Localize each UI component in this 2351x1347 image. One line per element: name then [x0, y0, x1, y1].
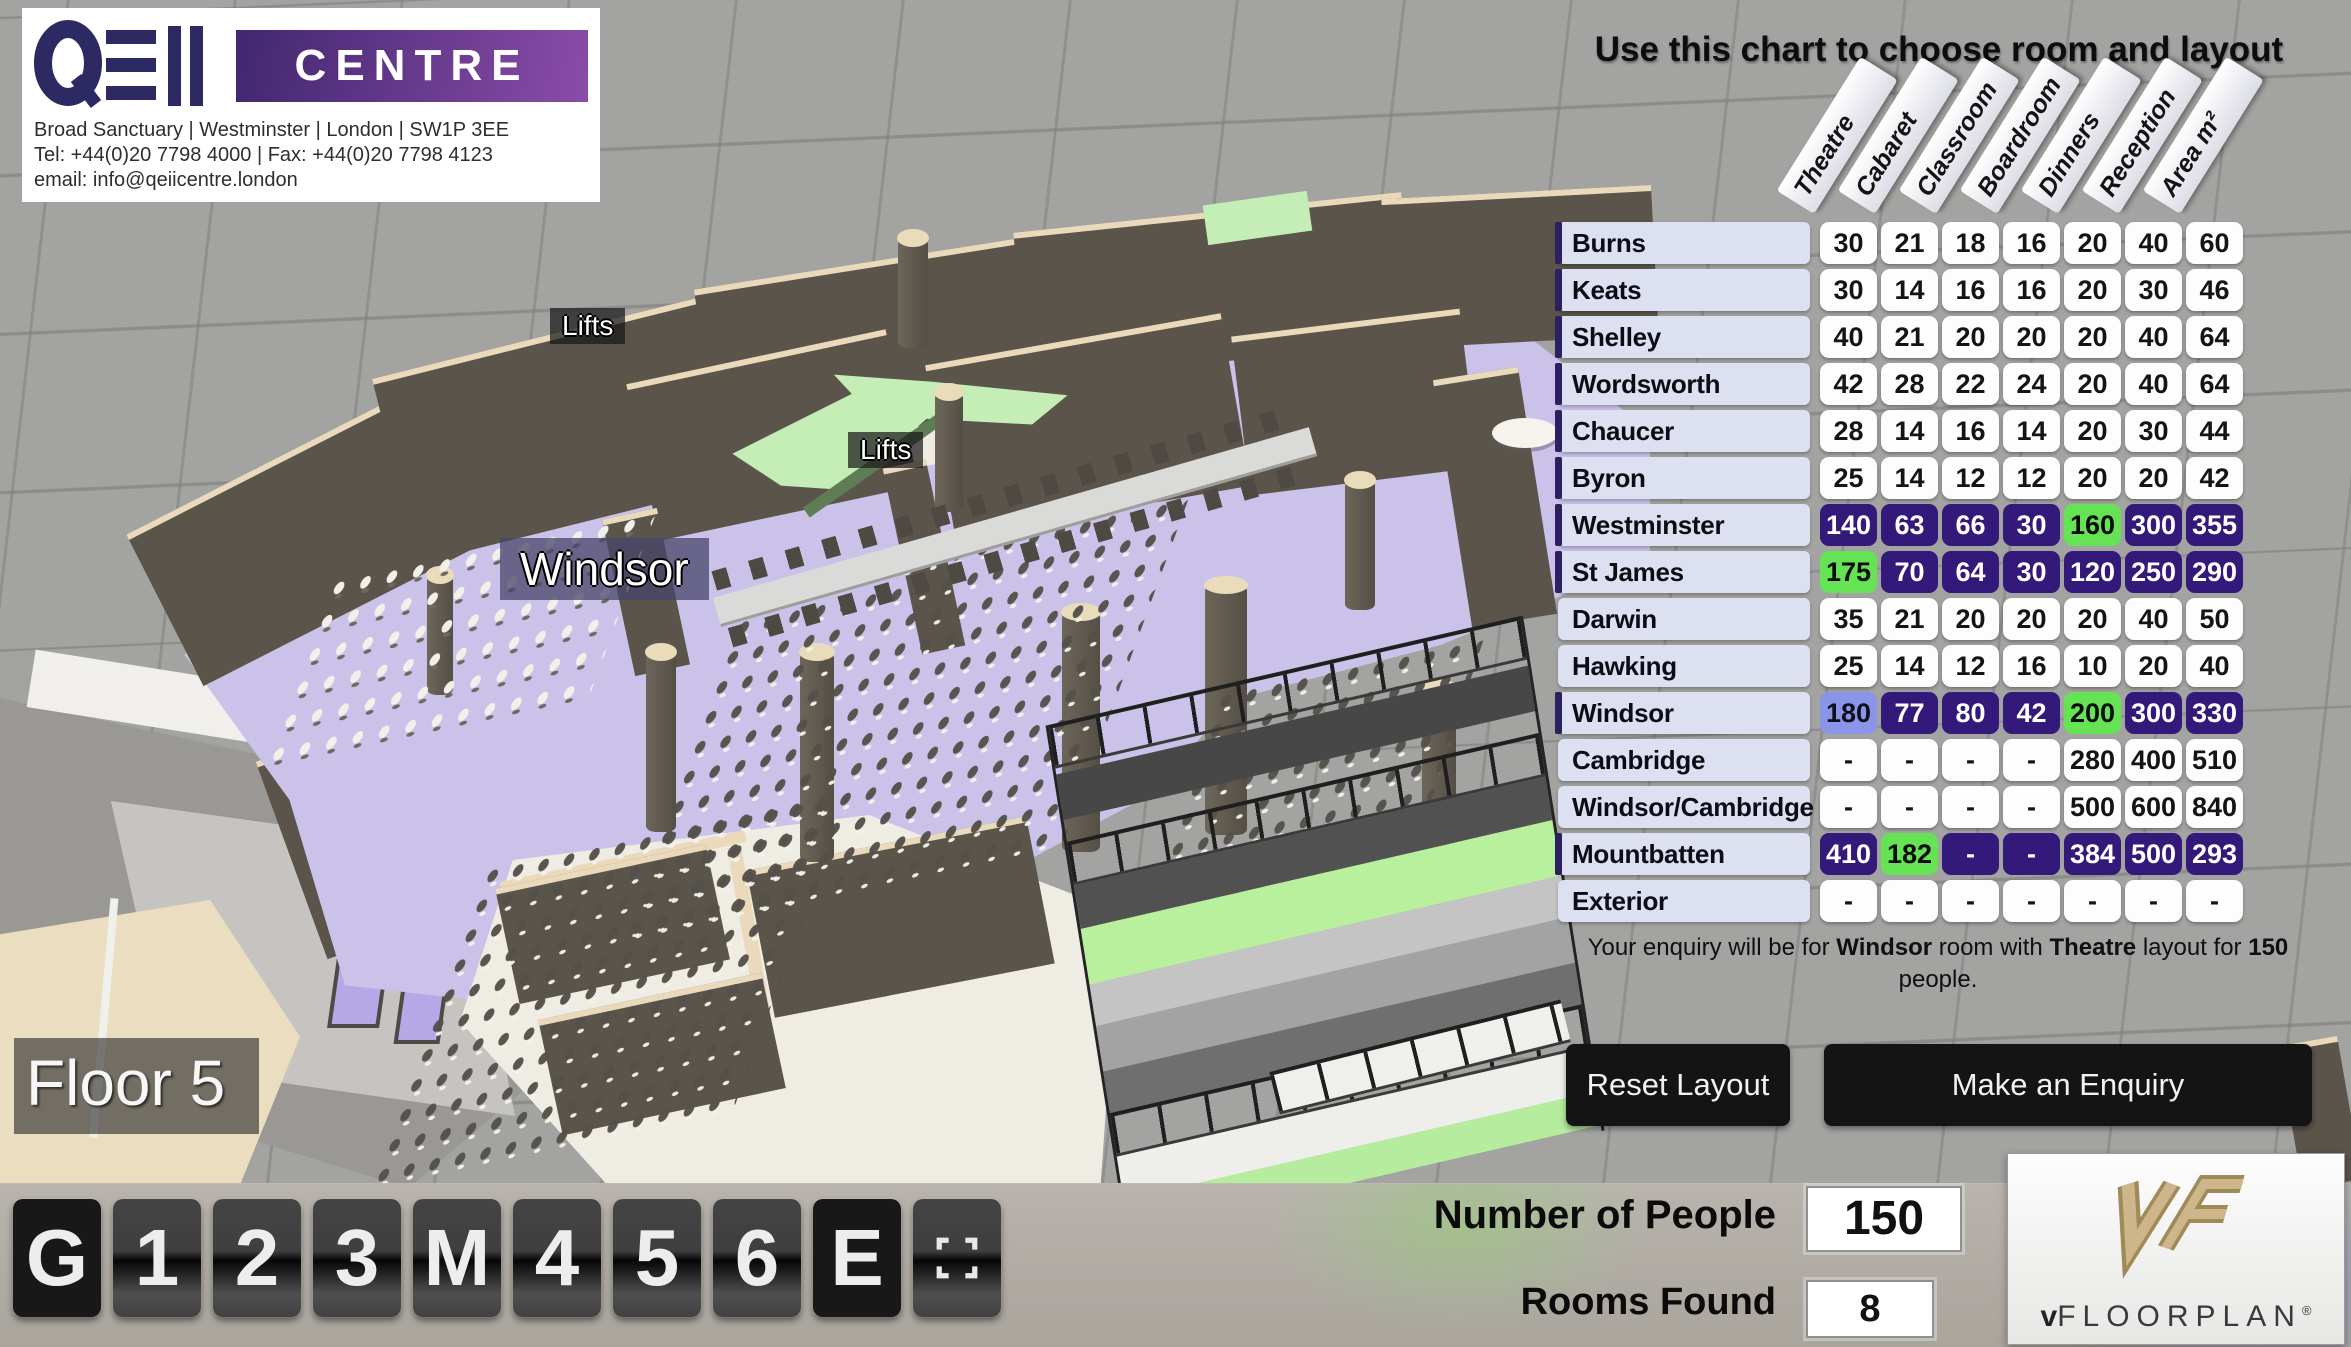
make-enquiry-button[interactable]: Make an Enquiry: [1824, 1044, 2312, 1126]
capacity-cell[interactable]: 20: [2064, 410, 2121, 452]
capacity-cell[interactable]: 300: [2125, 692, 2182, 734]
room-row-label[interactable]: Keats: [1558, 269, 1810, 311]
floor-button-label: 3: [335, 1212, 380, 1304]
capacity-cell[interactable]: 14: [1881, 457, 1938, 499]
capacity-cell[interactable]: 77: [1881, 692, 1938, 734]
room-row-label[interactable]: Wordsworth: [1558, 363, 1810, 405]
capacity-cell[interactable]: 64: [2186, 363, 2243, 405]
table-row: Byron25141212202042: [1558, 457, 2318, 499]
table-row: Shelley40212020204064: [1558, 316, 2318, 358]
table-row: Windsor180778042200300330: [1558, 692, 2318, 734]
wordmark-v: v: [2041, 1300, 2058, 1333]
capacity-cell[interactable]: 28: [1881, 363, 1938, 405]
vfloorplan-app: Lifts Lifts Windsor Floor 5 CENTRE Broad…: [0, 0, 2351, 1347]
capacity-cell[interactable]: 20: [2064, 269, 2121, 311]
capacity-cell[interactable]: -: [2003, 739, 2060, 781]
enquiry-text: Your enquiry will be for: [1588, 934, 1837, 961]
capacity-cell[interactable]: 20: [2064, 222, 2121, 264]
capacity-cell[interactable]: 30: [2003, 504, 2060, 546]
floor-button-3[interactable]: 3: [313, 1199, 401, 1317]
bottom-toolbar: G123M456E Number of People 150 Rooms Fou…: [0, 1183, 2351, 1347]
venue-address: Broad Sanctuary | Westminster | London |…: [34, 118, 588, 143]
capacity-cell[interactable]: -: [2064, 880, 2121, 922]
fullscreen-icon: [934, 1235, 980, 1281]
vfloorplan-logo: vFLOORPLAN®: [2007, 1153, 2345, 1345]
fullscreen-button[interactable]: [913, 1199, 1001, 1317]
capacity-cell[interactable]: 20: [2064, 457, 2121, 499]
floor-button-label: M: [424, 1212, 491, 1304]
capacity-cell[interactable]: 14: [1881, 269, 1938, 311]
column: [1345, 480, 1375, 610]
capacity-cell[interactable]: -: [2125, 880, 2182, 922]
table-row: Wordsworth42282224204064: [1558, 363, 2318, 405]
table-row: St James175706430120250290: [1558, 551, 2318, 593]
capacity-cell[interactable]: 20: [2064, 316, 2121, 358]
floor-button-label: 5: [635, 1212, 680, 1304]
capacity-cell[interactable]: 42: [2186, 457, 2243, 499]
capacity-cell[interactable]: 14: [2003, 410, 2060, 452]
capacity-cell[interactable]: 16: [2003, 269, 2060, 311]
table-row: Mountbatten410182--384500293: [1558, 833, 2318, 875]
capacity-cell[interactable]: 280: [2064, 739, 2121, 781]
capacity-cell[interactable]: 12: [1942, 457, 1999, 499]
room-row-label[interactable]: St James: [1558, 551, 1810, 593]
capacity-cell[interactable]: 500: [2064, 786, 2121, 828]
capacity-cell[interactable]: -: [1820, 880, 1877, 922]
capacity-cell[interactable]: 500: [2125, 833, 2182, 875]
capacity-cell[interactable]: 12: [1942, 645, 1999, 687]
capacity-cell[interactable]: 50: [2186, 598, 2243, 640]
capacity-cell[interactable]: 384: [2064, 833, 2121, 875]
floor-button-label: 4: [535, 1212, 580, 1304]
capacity-cell[interactable]: 20: [2125, 645, 2182, 687]
capacity-cell[interactable]: -: [1942, 880, 1999, 922]
centre-wordmark: CENTRE: [236, 30, 588, 102]
vfloorplan-wordmark: vFLOORPLAN®: [2041, 1300, 2312, 1334]
capacity-cell[interactable]: 28: [1820, 410, 1877, 452]
floor-button-G[interactable]: G: [13, 1199, 101, 1317]
room-chart-panel: Use this chart to choose room and layout…: [1556, 30, 2322, 1142]
enquiry-text: people.: [1899, 966, 1978, 993]
table-row: Cambridge----280400510: [1558, 739, 2318, 781]
floor-button-5[interactable]: 5: [613, 1199, 701, 1317]
capacity-cell[interactable]: -: [1942, 833, 1999, 875]
venue-brand-card: CENTRE Broad Sanctuary | Westminster | L…: [22, 8, 600, 202]
capacity-cell[interactable]: 70: [1881, 551, 1938, 593]
enquiry-text: room with: [1932, 934, 2049, 961]
floor-button-E[interactable]: E: [813, 1199, 901, 1317]
floor-button-4[interactable]: 4: [513, 1199, 601, 1317]
floor-button-2[interactable]: 2: [213, 1199, 301, 1317]
capacity-cell[interactable]: 42: [1820, 363, 1877, 405]
capacity-cell[interactable]: 14: [1881, 410, 1938, 452]
capacity-cell[interactable]: -: [1881, 739, 1938, 781]
capacity-cell[interactable]: 66: [1942, 504, 1999, 546]
capacity-cell[interactable]: 63: [1881, 504, 1938, 546]
capacity-cell[interactable]: 200: [2064, 692, 2121, 734]
capacity-cell[interactable]: 21: [1881, 598, 1938, 640]
capacity-cell[interactable]: 10: [2064, 645, 2121, 687]
capacity-cell[interactable]: 12: [2003, 457, 2060, 499]
capacity-cell[interactable]: 44: [2186, 410, 2243, 452]
capacity-cell[interactable]: 24: [2003, 363, 2060, 405]
capacity-cell[interactable]: 160: [2064, 504, 2121, 546]
capacity-cell[interactable]: 20: [1942, 598, 1999, 640]
capacity-cell[interactable]: 293: [2186, 833, 2243, 875]
room-row-label[interactable]: Westminster: [1558, 504, 1810, 546]
wordmark-rest: FLOORPLAN: [2057, 1300, 2302, 1333]
enquiry-room: Windsor: [1836, 934, 1932, 961]
capacity-cell[interactable]: 16: [1942, 410, 1999, 452]
column: [898, 238, 928, 348]
capacity-cell[interactable]: 18: [1942, 222, 1999, 264]
venue-phone: Tel: +44(0)20 7798 4000 | Fax: +44(0)20 …: [34, 143, 588, 168]
enquiry-layout: Theatre: [2049, 934, 2136, 961]
capacity-cell[interactable]: 600: [2125, 786, 2182, 828]
capacity-cell[interactable]: 510: [2186, 739, 2243, 781]
capacity-cell[interactable]: -: [2186, 880, 2243, 922]
capacity-cell[interactable]: 40: [2125, 316, 2182, 358]
capacity-cell[interactable]: 330: [2186, 692, 2243, 734]
room-row-label[interactable]: Mountbatten: [1558, 833, 1810, 875]
capacity-cell[interactable]: 22: [1942, 363, 1999, 405]
venue-email: email: info@qeiicentre.london: [34, 168, 588, 193]
capacity-cell[interactable]: 40: [2125, 222, 2182, 264]
capacity-cell[interactable]: -: [2003, 880, 2060, 922]
people-count-label: Number of People: [1380, 1193, 1776, 1238]
qeii-logo: [34, 18, 226, 114]
escalator-well: [1046, 615, 1605, 1240]
capacity-cell[interactable]: -: [1942, 786, 1999, 828]
vf-emblem-icon: [2091, 1160, 2261, 1280]
floor-button-label: G: [26, 1212, 88, 1304]
room-row-label[interactable]: Shelley: [1558, 316, 1810, 358]
table-row: Burns30211816204060: [1558, 222, 2318, 264]
table-row: Windsor/Cambridge----500600840: [1558, 786, 2318, 828]
capacity-cell[interactable]: 30: [2125, 269, 2182, 311]
capacity-cell[interactable]: 20: [2003, 316, 2060, 358]
capacity-cell[interactable]: 182: [1881, 833, 1938, 875]
room-row-label[interactable]: Exterior: [1558, 880, 1810, 922]
capacity-cell[interactable]: 30: [1820, 222, 1877, 264]
capacity-cell[interactable]: 20: [2064, 363, 2121, 405]
capacity-cell[interactable]: 40: [2186, 645, 2243, 687]
capacity-cell[interactable]: 120: [2064, 551, 2121, 593]
capacity-cell[interactable]: 21: [1881, 316, 1938, 358]
capacity-cell[interactable]: 64: [1942, 551, 1999, 593]
capacity-cell[interactable]: 175: [1820, 551, 1877, 593]
lifts-label: Lifts: [550, 308, 625, 344]
capacity-cell[interactable]: 40: [1820, 316, 1877, 358]
room-row-label[interactable]: Hawking: [1558, 645, 1810, 687]
capacity-cell[interactable]: 400: [2125, 739, 2182, 781]
room-row-label[interactable]: Windsor/Cambridge: [1558, 786, 1810, 828]
column: [935, 392, 963, 512]
capacity-cell[interactable]: 14: [1881, 645, 1938, 687]
table-row: Hawking25141216102040: [1558, 645, 2318, 687]
room-row-label[interactable]: Cambridge: [1558, 739, 1810, 781]
capacity-cell[interactable]: 64: [2186, 316, 2243, 358]
capacity-cell[interactable]: 300: [2125, 504, 2182, 546]
round-table: [1492, 418, 1558, 448]
enquiry-summary: Your enquiry will be for Windsor room wi…: [1566, 932, 2310, 996]
reset-layout-button[interactable]: Reset Layout: [1566, 1044, 1790, 1126]
capacity-cell[interactable]: 250: [2125, 551, 2182, 593]
capacity-cell[interactable]: 80: [1942, 692, 1999, 734]
registered-mark: ®: [2302, 1303, 2312, 1318]
capacity-cell[interactable]: 21: [1881, 222, 1938, 264]
capacity-cell[interactable]: 25: [1820, 645, 1877, 687]
table-row: Keats30141616203046: [1558, 269, 2318, 311]
capacity-cell[interactable]: 30: [2003, 551, 2060, 593]
table-row: Darwin35212020204050: [1558, 598, 2318, 640]
room-row-label[interactable]: Windsor: [1558, 692, 1810, 734]
floor-button-label: 2: [235, 1212, 280, 1304]
capacity-cell[interactable]: 20: [2003, 598, 2060, 640]
capacity-cell[interactable]: 16: [2003, 645, 2060, 687]
capacity-cell[interactable]: 16: [1942, 269, 1999, 311]
capacity-cell[interactable]: 180: [1820, 692, 1877, 734]
capacity-cell[interactable]: 40: [2125, 598, 2182, 640]
floor-button-label: 6: [735, 1212, 780, 1304]
capacity-cell[interactable]: 35: [1820, 598, 1877, 640]
capacity-cell[interactable]: 16: [2003, 222, 2060, 264]
enquiry-text: layout for: [2136, 934, 2248, 961]
capacity-cell[interactable]: -: [1820, 739, 1877, 781]
floor-button-1[interactable]: 1: [113, 1199, 201, 1317]
floor-button-label: 1: [135, 1212, 180, 1304]
rooms-found-value: 8: [1806, 1280, 1934, 1338]
capacity-cell[interactable]: 60: [2186, 222, 2243, 264]
room-table-rows: Burns30211816204060Keats30141616203046Sh…: [1558, 222, 2318, 922]
floor-button-label: E: [830, 1212, 883, 1304]
people-count-input[interactable]: 150: [1806, 1186, 1962, 1252]
room-row-label[interactable]: Burns: [1558, 222, 1810, 264]
capacity-cell[interactable]: -: [2003, 833, 2060, 875]
capacity-cell[interactable]: 40: [2125, 363, 2182, 405]
table-row: Chaucer28141614203044: [1558, 410, 2318, 452]
current-floor-label: Floor 5: [14, 1038, 259, 1134]
capacity-cell[interactable]: 20: [2064, 598, 2121, 640]
panel-title: Use this chart to choose room and layout: [1556, 30, 2322, 70]
rooms-found-label: Rooms Found: [1460, 1281, 1776, 1324]
capacity-cell[interactable]: 30: [2125, 410, 2182, 452]
capacity-cell[interactable]: 20: [1942, 316, 1999, 358]
enquiry-count: 150: [2248, 934, 2288, 961]
room-row-label[interactable]: Byron: [1558, 457, 1810, 499]
capacity-cell[interactable]: 42: [2003, 692, 2060, 734]
capacity-cell[interactable]: -: [1881, 880, 1938, 922]
lifts-label: Lifts: [848, 432, 923, 468]
capacity-cell[interactable]: -: [1881, 786, 1938, 828]
capacity-cell[interactable]: 290: [2186, 551, 2243, 593]
windsor-room-label: Windsor: [500, 538, 709, 600]
capacity-cell[interactable]: 140: [1820, 504, 1877, 546]
capacity-cell[interactable]: 46: [2186, 269, 2243, 311]
table-row: Exterior-------: [1558, 880, 2318, 922]
capacity-cell[interactable]: -: [2003, 786, 2060, 828]
capacity-cell[interactable]: -: [1820, 786, 1877, 828]
floor-button-6[interactable]: 6: [713, 1199, 801, 1317]
capacity-cell[interactable]: 840: [2186, 786, 2243, 828]
capacity-cell[interactable]: 410: [1820, 833, 1877, 875]
room-row-label[interactable]: Chaucer: [1558, 410, 1810, 452]
capacity-cell[interactable]: 355: [2186, 504, 2243, 546]
table-row: Westminster140636630160300355: [1558, 504, 2318, 546]
capacity-cell[interactable]: 20: [2125, 457, 2182, 499]
capacity-cell[interactable]: 30: [1820, 269, 1877, 311]
room-row-label[interactable]: Darwin: [1558, 598, 1810, 640]
capacity-cell[interactable]: 25: [1820, 457, 1877, 499]
capacity-cell[interactable]: -: [1942, 739, 1999, 781]
floor-button-M[interactable]: M: [413, 1199, 501, 1317]
